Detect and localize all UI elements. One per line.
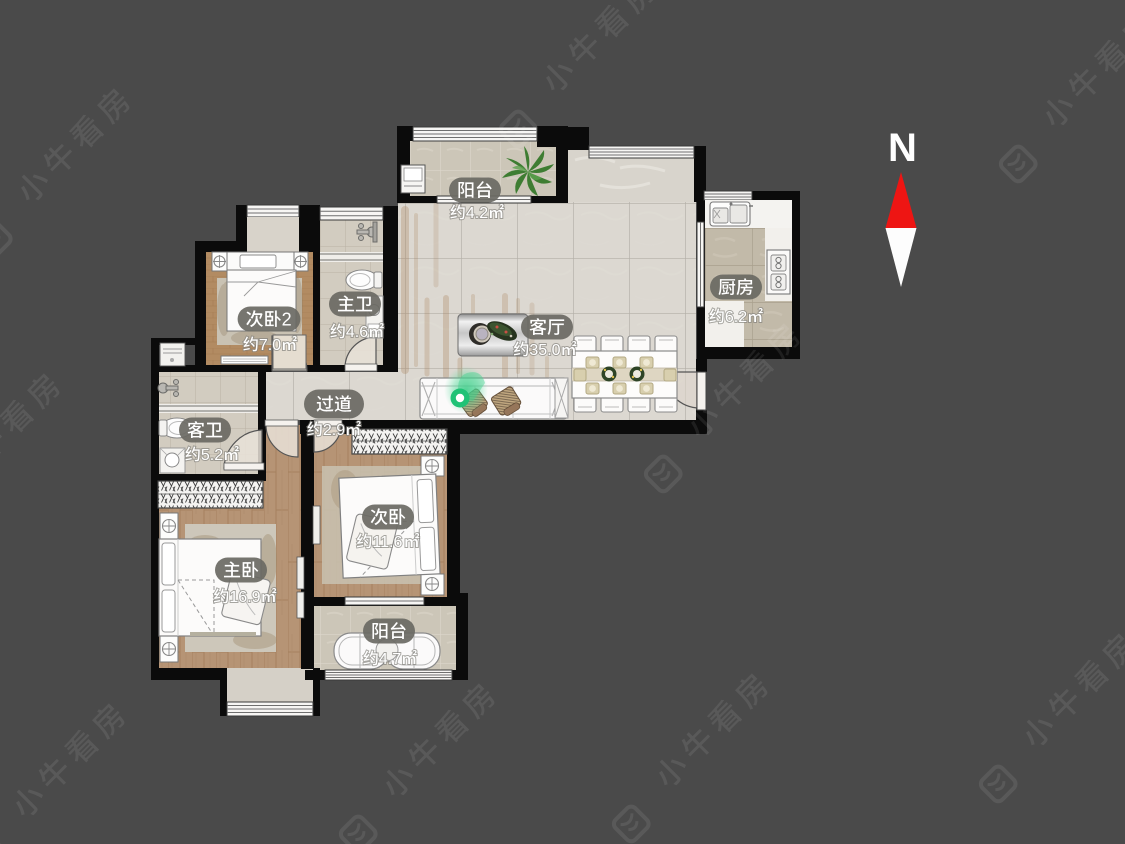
svg-text:35.0: 35.0	[529, 342, 560, 359]
svg-text:6.2: 6.2	[725, 309, 747, 326]
svg-text:11.6: 11.6	[372, 534, 402, 551]
svg-text:N: N	[888, 126, 917, 170]
svg-text:4.7: 4.7	[379, 651, 401, 668]
svg-text:7.0: 7.0	[259, 337, 281, 354]
svg-text:4.2: 4.2	[466, 205, 488, 222]
svg-text:4.6: 4.6	[346, 324, 368, 341]
svg-text:5.2: 5.2	[201, 447, 223, 464]
svg-text:2.9: 2.9	[323, 422, 345, 439]
svg-text:16.9: 16.9	[229, 589, 260, 606]
svg-text:2: 2	[282, 310, 292, 330]
